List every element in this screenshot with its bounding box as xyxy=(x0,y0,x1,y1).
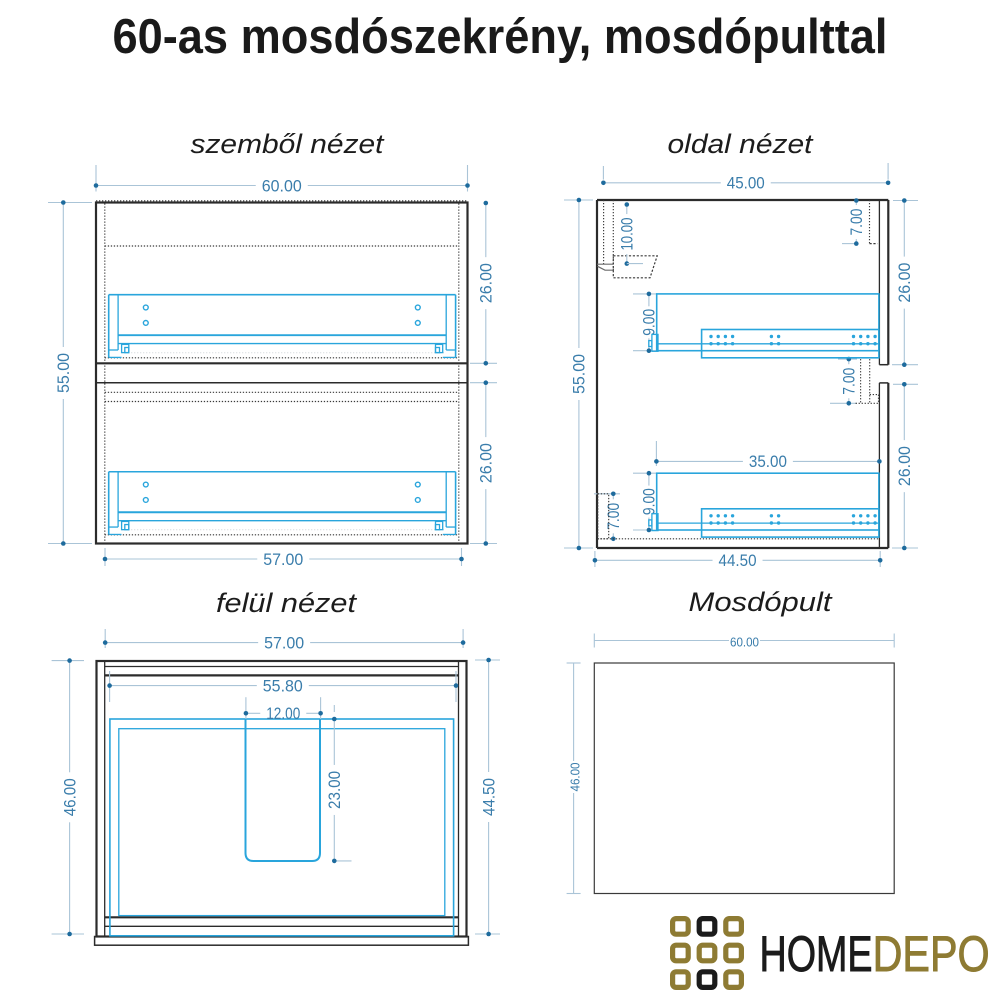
svg-text:57.00: 57.00 xyxy=(264,633,304,652)
svg-text:oldal nézet: oldal nézet xyxy=(668,129,815,159)
svg-text:Mosdópult: Mosdópult xyxy=(689,587,834,617)
svg-text:HOME: HOME xyxy=(760,926,873,982)
svg-text:60-as mosdószekrény, mosdópult: 60-as mosdószekrény, mosdópulttal xyxy=(113,10,888,64)
svg-text:44.50: 44.50 xyxy=(719,551,757,570)
svg-text:26.00: 26.00 xyxy=(477,443,496,483)
svg-text:9.00: 9.00 xyxy=(640,488,659,515)
svg-text:26.00: 26.00 xyxy=(895,263,914,303)
svg-text:60.00: 60.00 xyxy=(730,635,759,649)
svg-text:7.00: 7.00 xyxy=(847,209,866,236)
svg-text:57.00: 57.00 xyxy=(263,550,303,569)
svg-text:55.00: 55.00 xyxy=(570,354,589,394)
svg-text:46.00: 46.00 xyxy=(568,762,582,791)
svg-text:szemből nézet: szemből nézet xyxy=(191,129,386,159)
svg-text:7.00: 7.00 xyxy=(840,368,859,395)
svg-text:60.00: 60.00 xyxy=(262,176,302,195)
svg-text:7.00: 7.00 xyxy=(604,503,623,530)
svg-text:44.50: 44.50 xyxy=(479,778,498,816)
svg-text:10.00: 10.00 xyxy=(618,218,637,251)
svg-text:26.00: 26.00 xyxy=(477,263,496,303)
svg-text:55.00: 55.00 xyxy=(54,353,73,393)
svg-text:felül nézet: felül nézet xyxy=(216,588,358,618)
svg-text:9.00: 9.00 xyxy=(640,309,659,336)
svg-text:23.00: 23.00 xyxy=(325,771,344,809)
svg-text:46.00: 46.00 xyxy=(60,778,79,816)
svg-text:12.00: 12.00 xyxy=(266,704,300,723)
svg-text:35.00: 35.00 xyxy=(749,452,787,471)
svg-text:DEPO: DEPO xyxy=(873,926,990,982)
svg-text:55.80: 55.80 xyxy=(263,676,303,695)
svg-text:45.00: 45.00 xyxy=(727,174,765,193)
svg-text:26.00: 26.00 xyxy=(895,446,914,486)
